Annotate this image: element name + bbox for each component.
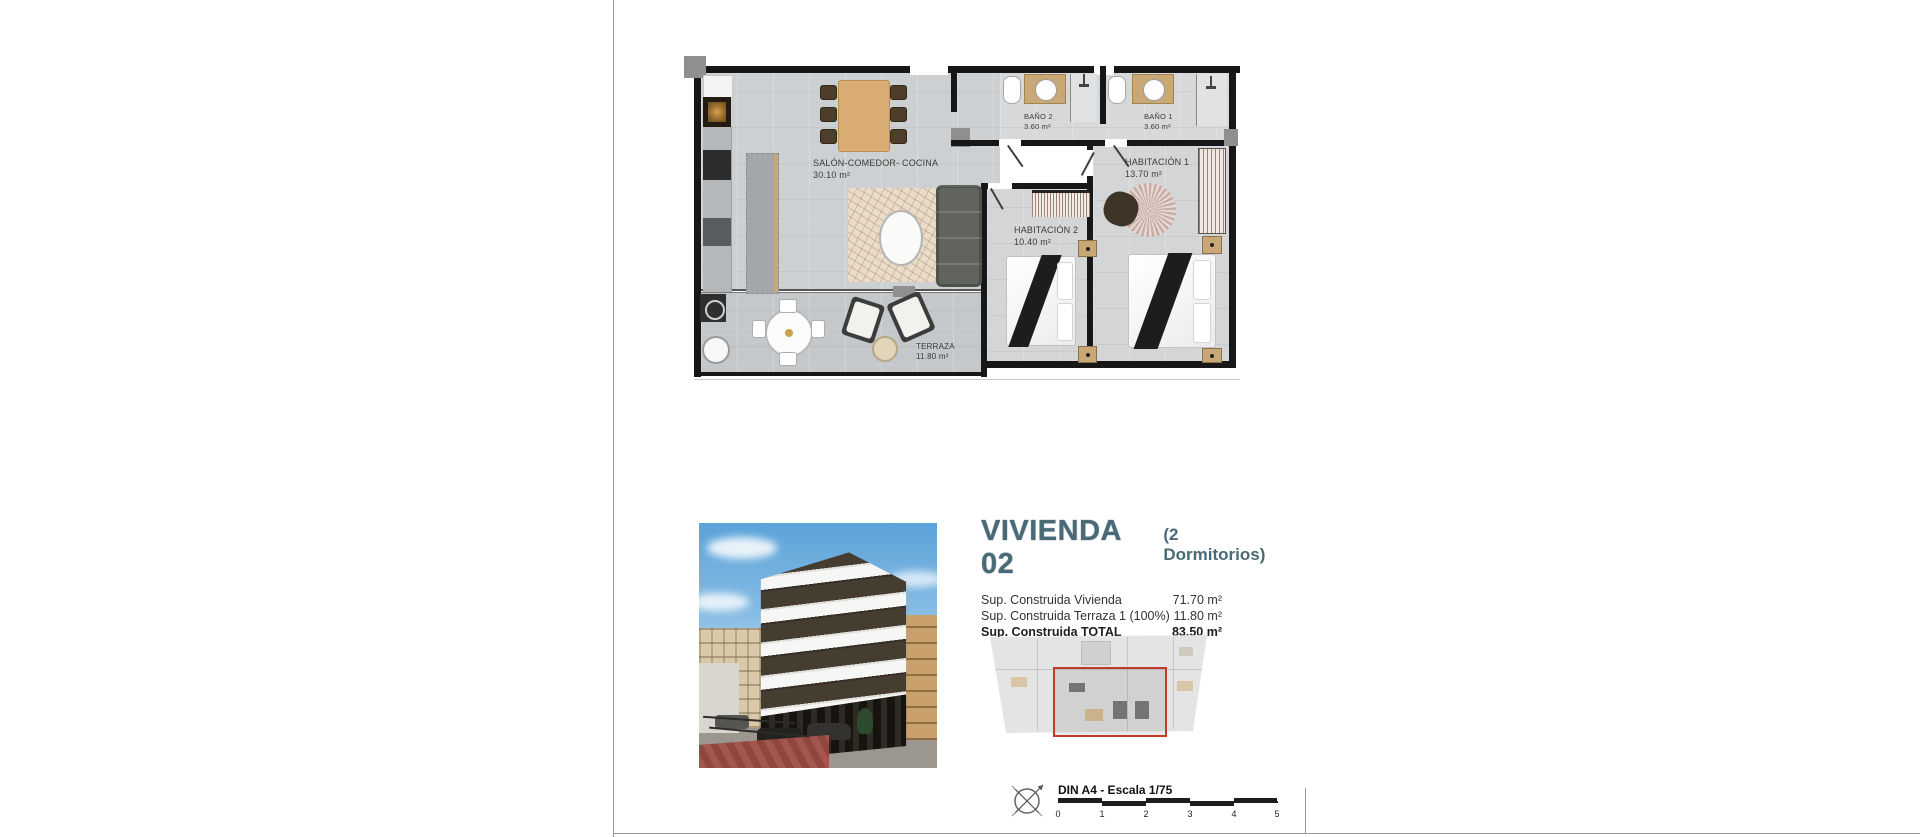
kitchen-cabinet [703,75,733,99]
wall-segment [1087,146,1093,368]
sofa [936,185,982,287]
room-area: 3.60 m² [1024,122,1053,132]
scale-label: DIN A4 - Escala 1/75 [1058,783,1172,797]
chair-icon [890,129,907,144]
glass-door [701,292,981,293]
scale-bar-segment [1058,798,1102,801]
surface-label: Sup. Construida Vivienda [981,592,1122,608]
key-furniture [1177,681,1193,691]
scale-tick: 5 [1266,809,1288,819]
building-photo [699,523,937,768]
boiler-icon [702,336,730,364]
bathroom-vanity [1024,74,1066,104]
compass-icon [1006,776,1052,822]
tree [857,708,873,734]
room-label-bedroom2: HABITACIÓN 2 10.40 m² [1014,225,1078,248]
shower-icon [1206,86,1216,89]
surface-value: 11.80 m² [1174,608,1222,624]
unit-subtitle: (2 Dormitorios) [1163,525,1281,565]
side-table [872,336,898,362]
chair-icon [820,85,837,100]
unit-highlight [1053,667,1167,737]
room-label-bath1: BAÑO 1 3.60 m² [1144,112,1173,132]
scale-tick: 3 [1179,809,1201,819]
cloud [707,537,777,559]
room-area: 30.10 m² [813,170,938,182]
scale-tick: 1 [1091,809,1113,819]
island-wood-edge [774,154,778,293]
unit-title: VIVIENDA 02 [981,515,1156,581]
pillow [1057,303,1073,341]
room-name: BAÑO 2 [1024,112,1053,122]
pillow [1057,262,1073,300]
scale-bar-line [1058,801,1278,803]
key-furniture [1085,709,1103,721]
cabinet-light [708,102,726,122]
glass-door [701,289,981,291]
room-name: BAÑO 1 [1144,112,1173,122]
door-opening [1105,139,1127,147]
kitchen-island [746,153,779,294]
scale-tick: 0 [1047,809,1069,819]
chair-icon [820,129,837,144]
titleblock-divider [1305,788,1306,833]
scale-bar-segment [1190,803,1234,806]
wall-art [1032,190,1090,217]
room-name: SALÓN-COMEDOR- COCINA [813,158,938,170]
bed [1006,256,1076,346]
key-furniture [1113,701,1127,719]
pillow [1193,260,1211,300]
room-area: 3.60 m² [1144,122,1173,132]
door-opening [910,64,948,75]
wardrobe [1198,148,1226,234]
shower-icon [1079,84,1089,87]
room-name: HABITACIÓN 1 [1125,157,1189,169]
bed-throw [1008,255,1061,347]
sheet-left-border [613,0,614,837]
door-leaf [1007,145,1023,167]
unit-info: VIVIENDA 02 (2 Dormitorios) Sup. Constru… [981,515,1281,640]
pillar [1224,129,1238,146]
key-furniture [1135,701,1149,719]
bed-throw [1134,253,1193,349]
kitchen-counter [703,127,732,292]
pillow [1193,303,1211,343]
key-furniture [1011,677,1027,687]
sink-icon [1035,79,1057,101]
bed [1128,254,1216,348]
key-furniture [1179,647,1193,656]
unit-title-row: VIVIENDA 02 (2 Dormitorios) [981,515,1281,581]
surface-value: 71.70 m² [1173,592,1222,608]
key-plan [977,633,1223,736]
room-label-living: SALÓN-COMEDOR- COCINA 30.10 m² [813,158,938,181]
dining-table [838,80,890,152]
room-label-bedroom1: HABITACIÓN 1 13.70 m² [1125,157,1189,180]
table-centerpiece [785,329,793,337]
sheet-bottom-border [613,833,1920,834]
neighbor-building-right [903,615,937,740]
surface-row: Sup. Construida Terraza 1 (100%) 11.80 m… [981,608,1222,624]
toilet-icon [1003,76,1021,104]
terrace-table [765,309,813,357]
wall-segment [694,66,701,377]
wall-segment [985,361,1236,368]
washing-machine-icon [700,294,726,322]
sink-icon [703,218,731,246]
oven-icon [703,150,731,180]
scale-bar-segment [1146,798,1190,801]
nightstand [1202,348,1222,363]
chair-icon [811,320,825,338]
shower-area [1196,74,1227,126]
wall-segment [1100,66,1106,124]
scale-tick: 4 [1223,809,1245,819]
nightstand [1078,240,1097,257]
wall-segment [1229,66,1236,368]
shower-area [1070,74,1097,122]
terrace-railing [694,372,986,376]
balcony-edge-line [694,379,1240,380]
room-area: 10.40 m² [1014,237,1078,249]
bathroom-vanity [1132,74,1174,104]
washer-door [705,300,725,320]
sink-icon [1143,79,1165,101]
kitchen-cabinet [703,97,731,127]
room-name: HABITACIÓN 2 [1014,225,1078,237]
key-furniture [1069,683,1085,692]
chair-icon [820,107,837,122]
wall-segment [694,66,1240,73]
room-label-bath2: BAÑO 2 3.60 m² [1024,112,1053,132]
scale-bar-segment [1234,798,1277,801]
scale-tick: 2 [1135,809,1157,819]
chair-icon [752,320,766,338]
room-area: 13.70 m² [1125,169,1189,181]
chair-icon [779,299,797,313]
surface-label: Sup. Construida Terraza 1 (100%) [981,608,1170,624]
room-label-terrace: TERRAZA 11.80 m² [916,342,955,363]
nightstand [1202,236,1222,254]
chair-icon [890,107,907,122]
scale-bar-segment [1102,803,1146,806]
stair-core [1081,641,1111,665]
chair-icon [779,352,797,366]
cushion [846,301,881,339]
room-name: TERRAZA [916,342,955,352]
shower-icon [1210,76,1212,86]
wall-segment [951,140,1236,146]
door-opening [999,139,1021,147]
shower-icon [1083,74,1085,84]
wall-segment [951,66,957,112]
surface-row: Sup. Construida Vivienda 71.70 m² [981,592,1222,608]
room-area: 11.80 m² [916,352,955,362]
toilet-icon [1108,76,1126,104]
chair-icon [890,85,907,100]
nightstand [1078,346,1097,363]
coffee-table [879,210,923,266]
plan-sheet: SALÓN-COMEDOR- COCINA 30.10 m² BAÑO 2 3.… [0,0,1920,837]
